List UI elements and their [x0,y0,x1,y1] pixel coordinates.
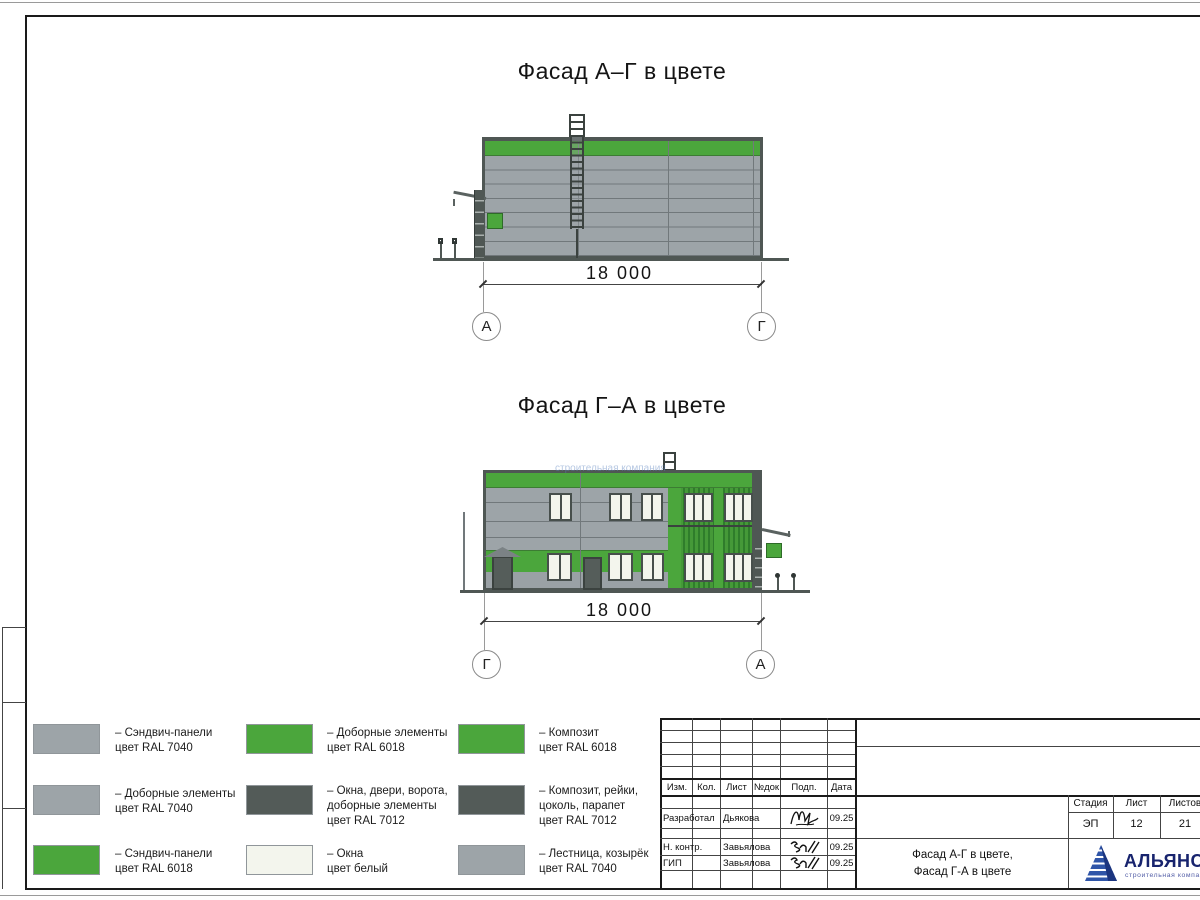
window [724,493,753,522]
ladder-cage-rung [571,121,583,123]
ground-line [460,590,810,593]
dimension-label: 18 000 [586,263,653,284]
legend-label: – Окна цвет белый [327,847,388,877]
window [549,493,572,521]
margin-column-edge [2,627,3,889]
dimension-line [483,284,762,285]
legend-label: – Сэндвич-панели цвет RAL 7040 [115,726,212,756]
ladder-cage [569,114,585,137]
color-swatch [33,785,100,815]
color-swatch [33,724,100,754]
tb-line [692,718,693,888]
axis-circle-a: А [746,650,775,679]
panel-joint [580,473,581,588]
green-pilaster [714,488,723,588]
legend-label: – Окна, двери, ворота, доборные элементы… [327,784,448,830]
facade-ag-drawing [482,137,763,259]
axis-circle-g: Г [747,312,776,341]
tb-line [660,838,855,839]
tb-header-podp: Подп. [781,782,827,793]
tb-doc-title-line2: Фасад Г-А в цвете [857,864,1068,881]
entrance-door [492,556,513,590]
panel-joint [486,537,668,538]
entrance-door [583,557,602,590]
color-swatch [246,724,313,754]
tb-line [660,870,855,871]
frame-left [25,15,27,890]
facade-ga-green-band [486,473,759,488]
color-swatch [458,845,525,875]
margin-cell-line [2,808,26,809]
tb-sheet-label: Лист [1113,798,1160,809]
bollard-cap [791,573,796,578]
tb-header-izm: Изм. [663,782,691,793]
facade-ag-green-band [485,141,760,156]
tb-line [857,746,1200,747]
legend-label: – Доборные элементы цвет RAL 7040 [115,787,235,817]
tb-line [857,795,1200,797]
signature-icon [788,839,822,855]
dimension-line [484,621,762,622]
tb-name: Дьякова [723,813,759,824]
legend-label: – Лестница, козырёк цвет RAL 7040 [539,847,649,877]
tb-line [660,855,855,856]
tb-line [660,766,855,767]
green-pilaster [668,488,681,588]
panel-joint [486,521,668,522]
window [684,493,713,522]
tb-role: ГИП [663,858,682,869]
window [547,553,572,581]
window [608,553,633,581]
green-signage-box [487,213,503,229]
window [684,553,713,582]
tb-line [660,718,1200,720]
tb-date: 09.25 [828,858,855,869]
canopy-support [453,199,455,206]
floor-slab-line [668,525,752,527]
window [724,553,753,582]
drawing-sheet: Фасад А–Г в цвете 18 000 А Г Фасад Г–А в… [0,0,1200,900]
axis-circle-g: Г [472,650,501,679]
bollard-cap [438,238,443,244]
facade-ag-title: Фасад А–Г в цвете [452,58,792,85]
ladder-rail-tail [576,229,578,258]
vent-shaft-line [665,461,674,463]
window [641,493,663,521]
tb-line [660,754,855,755]
tb-sheets-label: Листов [1160,798,1200,809]
tb-header-doc: №док [753,782,780,793]
legend-label: – Композит цвет RAL 6018 [539,726,617,756]
tb-line [660,718,662,888]
legend-label: – Композит, рейки, цоколь, парапет цвет … [539,784,638,830]
facade-ga-title: Фасад Г–А в цвете [452,392,792,419]
tb-doc-title-line1: Фасад А-Г в цвете, [857,847,1068,864]
tb-date: 09.25 [828,842,855,853]
tb-line [1068,812,1200,813]
tb-line [660,828,855,829]
tb-name: Завьялова [723,842,770,853]
legend-label: – Доборные элементы цвет RAL 6018 [327,726,447,756]
dimension-label: 18 000 [586,600,653,621]
ground-line [433,258,789,261]
tb-header-list: Лист [721,782,752,793]
window [641,553,664,581]
bollard-cap [775,573,780,578]
color-swatch [246,785,313,815]
tb-line [857,838,1200,839]
downpipe [463,512,465,590]
logo-tagline: строительная компания [1125,872,1200,879]
tb-sheets-value: 21 [1160,818,1200,830]
green-signage-box [766,543,782,558]
panel-joint [668,141,669,256]
tb-header-kol: Кол. [693,782,720,793]
tb-date: 09.25 [828,813,855,824]
tb-line [780,718,781,888]
tb-line [660,778,855,780]
tb-name: Завьялова [723,858,770,869]
tb-stage-label: Стадия [1068,798,1113,809]
extension-line [761,262,762,312]
corner-ladder-strip [755,540,762,588]
company-logo: АЛЬЯНС строительная компания [1082,843,1200,885]
color-swatch [246,845,313,875]
tb-role: Н. контр. [663,842,702,853]
tb-stage-value: ЭП [1068,818,1113,830]
extension-line [483,262,484,312]
color-swatch [458,785,525,815]
logo-name: АЛЬЯНС [1124,851,1200,872]
tb-line [720,718,721,888]
tb-role: Разработал [663,813,715,824]
facade-ag-panels [485,156,760,256]
tb-line [660,795,855,797]
color-swatch [458,724,525,754]
corner-ladder-strip [474,190,484,259]
facade-ag-wall [485,141,760,256]
frame-top [25,15,1200,17]
tb-line [660,742,855,743]
window [609,493,632,521]
tb-line [660,808,855,809]
canopy-support [788,531,790,537]
signature-icon [788,855,822,871]
tb-line [660,730,855,731]
roof-ladder [570,137,584,229]
tb-sheet-value: 12 [1113,818,1160,830]
signature-icon [788,806,822,828]
sheet-bottom-edge [0,895,1200,896]
sheet-top-edge [0,2,1200,3]
ladder-cage-rung [571,128,583,130]
side-canopy [762,528,791,537]
bollard-cap [452,238,457,244]
panel-joint [753,141,754,256]
color-swatch [33,845,100,875]
tb-doc-title: Фасад А-Г в цвете, Фасад Г-А в цвете [857,847,1068,882]
legend-label: – Сэндвич-панели цвет RAL 6018 [115,847,212,877]
watermark-text: строительная компания [555,463,666,474]
margin-cell-line [2,627,26,628]
axis-circle-a: А [472,312,501,341]
frame-bottom [25,888,1200,890]
tb-header-data: Дата [828,782,855,793]
margin-cell-line [2,702,26,703]
